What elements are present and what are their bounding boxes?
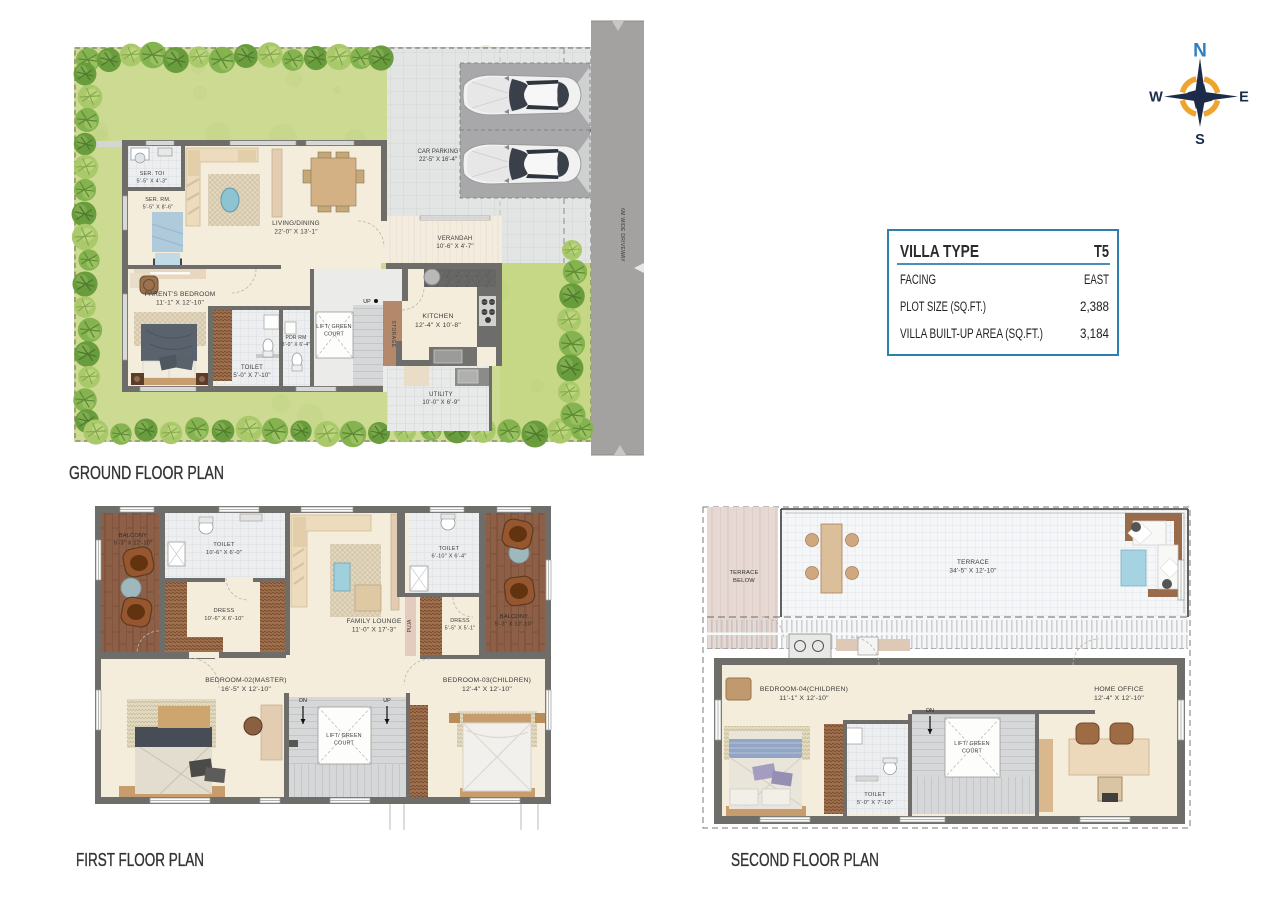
svg-text:LIFT/ GREEN: LIFT/ GREEN xyxy=(326,733,361,739)
svg-text:5'-0" X 7'-10": 5'-0" X 7'-10" xyxy=(233,373,270,379)
svg-text:FAMILY LOUNGE: FAMILY LOUNGE xyxy=(346,618,402,625)
svg-text:6'-10" X 6'-4": 6'-10" X 6'-4" xyxy=(431,554,466,560)
svg-text:PLOT SIZE (SQ.FT.): PLOT SIZE (SQ.FT.) xyxy=(900,299,986,314)
svg-text:BEDROOM-04(CHILDREN): BEDROOM-04(CHILDREN) xyxy=(760,686,848,693)
svg-text:5'-5" X 5'-1": 5'-5" X 5'-1" xyxy=(445,625,476,631)
svg-text:TOILET: TOILET xyxy=(439,546,460,552)
svg-text:3,184: 3,184 xyxy=(1080,326,1109,341)
svg-text:TOILET: TOILET xyxy=(213,542,235,548)
svg-text:COURT: COURT xyxy=(962,748,983,754)
svg-text:DRESS: DRESS xyxy=(214,608,235,614)
svg-text:BALCONY: BALCONY xyxy=(119,533,147,539)
svg-text:COURT: COURT xyxy=(334,740,355,746)
svg-text:SER. TOI: SER. TOI xyxy=(140,171,164,177)
svg-text:FIRST FLOOR PLAN: FIRST FLOOR PLAN xyxy=(76,849,204,870)
svg-text:TERRACE: TERRACE xyxy=(957,559,989,566)
svg-text:UTILITY: UTILITY xyxy=(429,392,453,398)
svg-text:5'-3" X 12'-10": 5'-3" X 12'-10" xyxy=(495,622,533,628)
svg-text:LIFT/ GREEN: LIFT/ GREEN xyxy=(316,324,351,330)
svg-text:10'-6" X 4'-7": 10'-6" X 4'-7" xyxy=(436,244,473,250)
svg-text:22'-5" X 16'-4": 22'-5" X 16'-4" xyxy=(419,157,457,163)
svg-text:KITCHEN: KITCHEN xyxy=(422,313,453,320)
svg-text:TOILET: TOILET xyxy=(864,792,886,798)
svg-text:10'-6" X 6'-10": 10'-6" X 6'-10" xyxy=(204,616,244,622)
svg-text:SER. RM.: SER. RM. xyxy=(145,197,171,203)
svg-text:PDR RM: PDR RM xyxy=(286,335,307,341)
svg-text:11'-1" X 12'-10": 11'-1" X 12'-10" xyxy=(779,695,829,702)
svg-text:DN: DN xyxy=(926,708,934,714)
svg-text:2,388: 2,388 xyxy=(1080,299,1109,314)
svg-text:DRESS: DRESS xyxy=(450,618,470,624)
svg-text:10'-0" X 6'-9": 10'-0" X 6'-9" xyxy=(422,400,459,406)
svg-text:BALCONY: BALCONY xyxy=(500,614,528,620)
svg-text:LIFT/ GREEN: LIFT/ GREEN xyxy=(954,741,989,747)
svg-text:VILLA BUILT-UP AREA (SQ.FT.): VILLA BUILT-UP AREA (SQ.FT.) xyxy=(900,326,1043,341)
svg-text:T5: T5 xyxy=(1094,241,1109,261)
svg-text:10'-6" X 6'-0": 10'-6" X 6'-0" xyxy=(206,550,242,556)
svg-text:16'-5" X 12'-10": 16'-5" X 12'-10" xyxy=(221,686,271,693)
svg-text:6M WIDE DRIVEWAY: 6M WIDE DRIVEWAY xyxy=(619,208,625,262)
svg-text:5'-0" X 7'-10": 5'-0" X 7'-10" xyxy=(857,800,893,806)
svg-text:TERRACE: TERRACE xyxy=(729,570,758,576)
svg-text:34'-5" X 12'-10": 34'-5" X 12'-10" xyxy=(949,567,996,574)
svg-text:BELOW: BELOW xyxy=(733,578,755,584)
svg-text:12'-4" X 12'-10": 12'-4" X 12'-10" xyxy=(1094,695,1144,702)
svg-text:DN: DN xyxy=(299,698,307,704)
svg-text:11'-1" X 12'-10": 11'-1" X 12'-10" xyxy=(156,300,204,307)
svg-text:W: W xyxy=(1149,90,1163,106)
svg-text:SECOND FLOOR PLAN: SECOND FLOOR PLAN xyxy=(731,849,879,870)
svg-text:5'-3" X 12'-10": 5'-3" X 12'-10" xyxy=(114,541,152,547)
svg-text:STORAGE: STORAGE xyxy=(390,320,396,347)
svg-text:BEDROOM-03(CHILDREN): BEDROOM-03(CHILDREN) xyxy=(443,677,531,684)
svg-text:22'-0" X 13'-1": 22'-0" X 13'-1" xyxy=(274,228,317,235)
svg-text:EAST: EAST xyxy=(1084,272,1109,287)
svg-text:E: E xyxy=(1239,90,1249,106)
svg-text:VERANDAH: VERANDAH xyxy=(438,236,473,242)
svg-text:CAR PARKING: CAR PARKING xyxy=(418,149,459,155)
svg-text:N: N xyxy=(1193,41,1207,62)
svg-text:S: S xyxy=(1195,132,1205,148)
svg-text:5'-5" X 8'-6": 5'-5" X 8'-6" xyxy=(143,204,174,210)
svg-text:TOILET: TOILET xyxy=(241,365,263,371)
svg-text:PARENT'S BEDROOM: PARENT'S BEDROOM xyxy=(144,291,215,298)
svg-text:LIVING/DINING: LIVING/DINING xyxy=(272,220,320,227)
svg-text:11'-0" X 17'-3": 11'-0" X 17'-3" xyxy=(352,627,397,634)
svg-text:12'-4" X 10'-8": 12'-4" X 10'-8" xyxy=(415,322,461,329)
svg-text:UP: UP xyxy=(363,299,371,305)
svg-text:BEDROOM-02(MASTER): BEDROOM-02(MASTER) xyxy=(205,677,286,684)
svg-text:PUJA: PUJA xyxy=(407,619,413,632)
svg-text:UP: UP xyxy=(383,698,391,704)
svg-text:12'-4" X 12'-10": 12'-4" X 12'-10" xyxy=(462,686,512,693)
svg-text:5'-5" X 4'-3": 5'-5" X 4'-3" xyxy=(137,178,168,184)
svg-text:HOME OFFICE: HOME OFFICE xyxy=(1094,686,1144,693)
svg-text:3'-0" X 6'-4": 3'-0" X 6'-4" xyxy=(282,342,311,348)
svg-text:FACING: FACING xyxy=(900,272,936,287)
svg-text:VILLA TYPE: VILLA TYPE xyxy=(900,241,979,261)
svg-text:GROUND FLOOR PLAN: GROUND FLOOR PLAN xyxy=(69,462,224,483)
svg-text:COURT: COURT xyxy=(324,331,345,337)
